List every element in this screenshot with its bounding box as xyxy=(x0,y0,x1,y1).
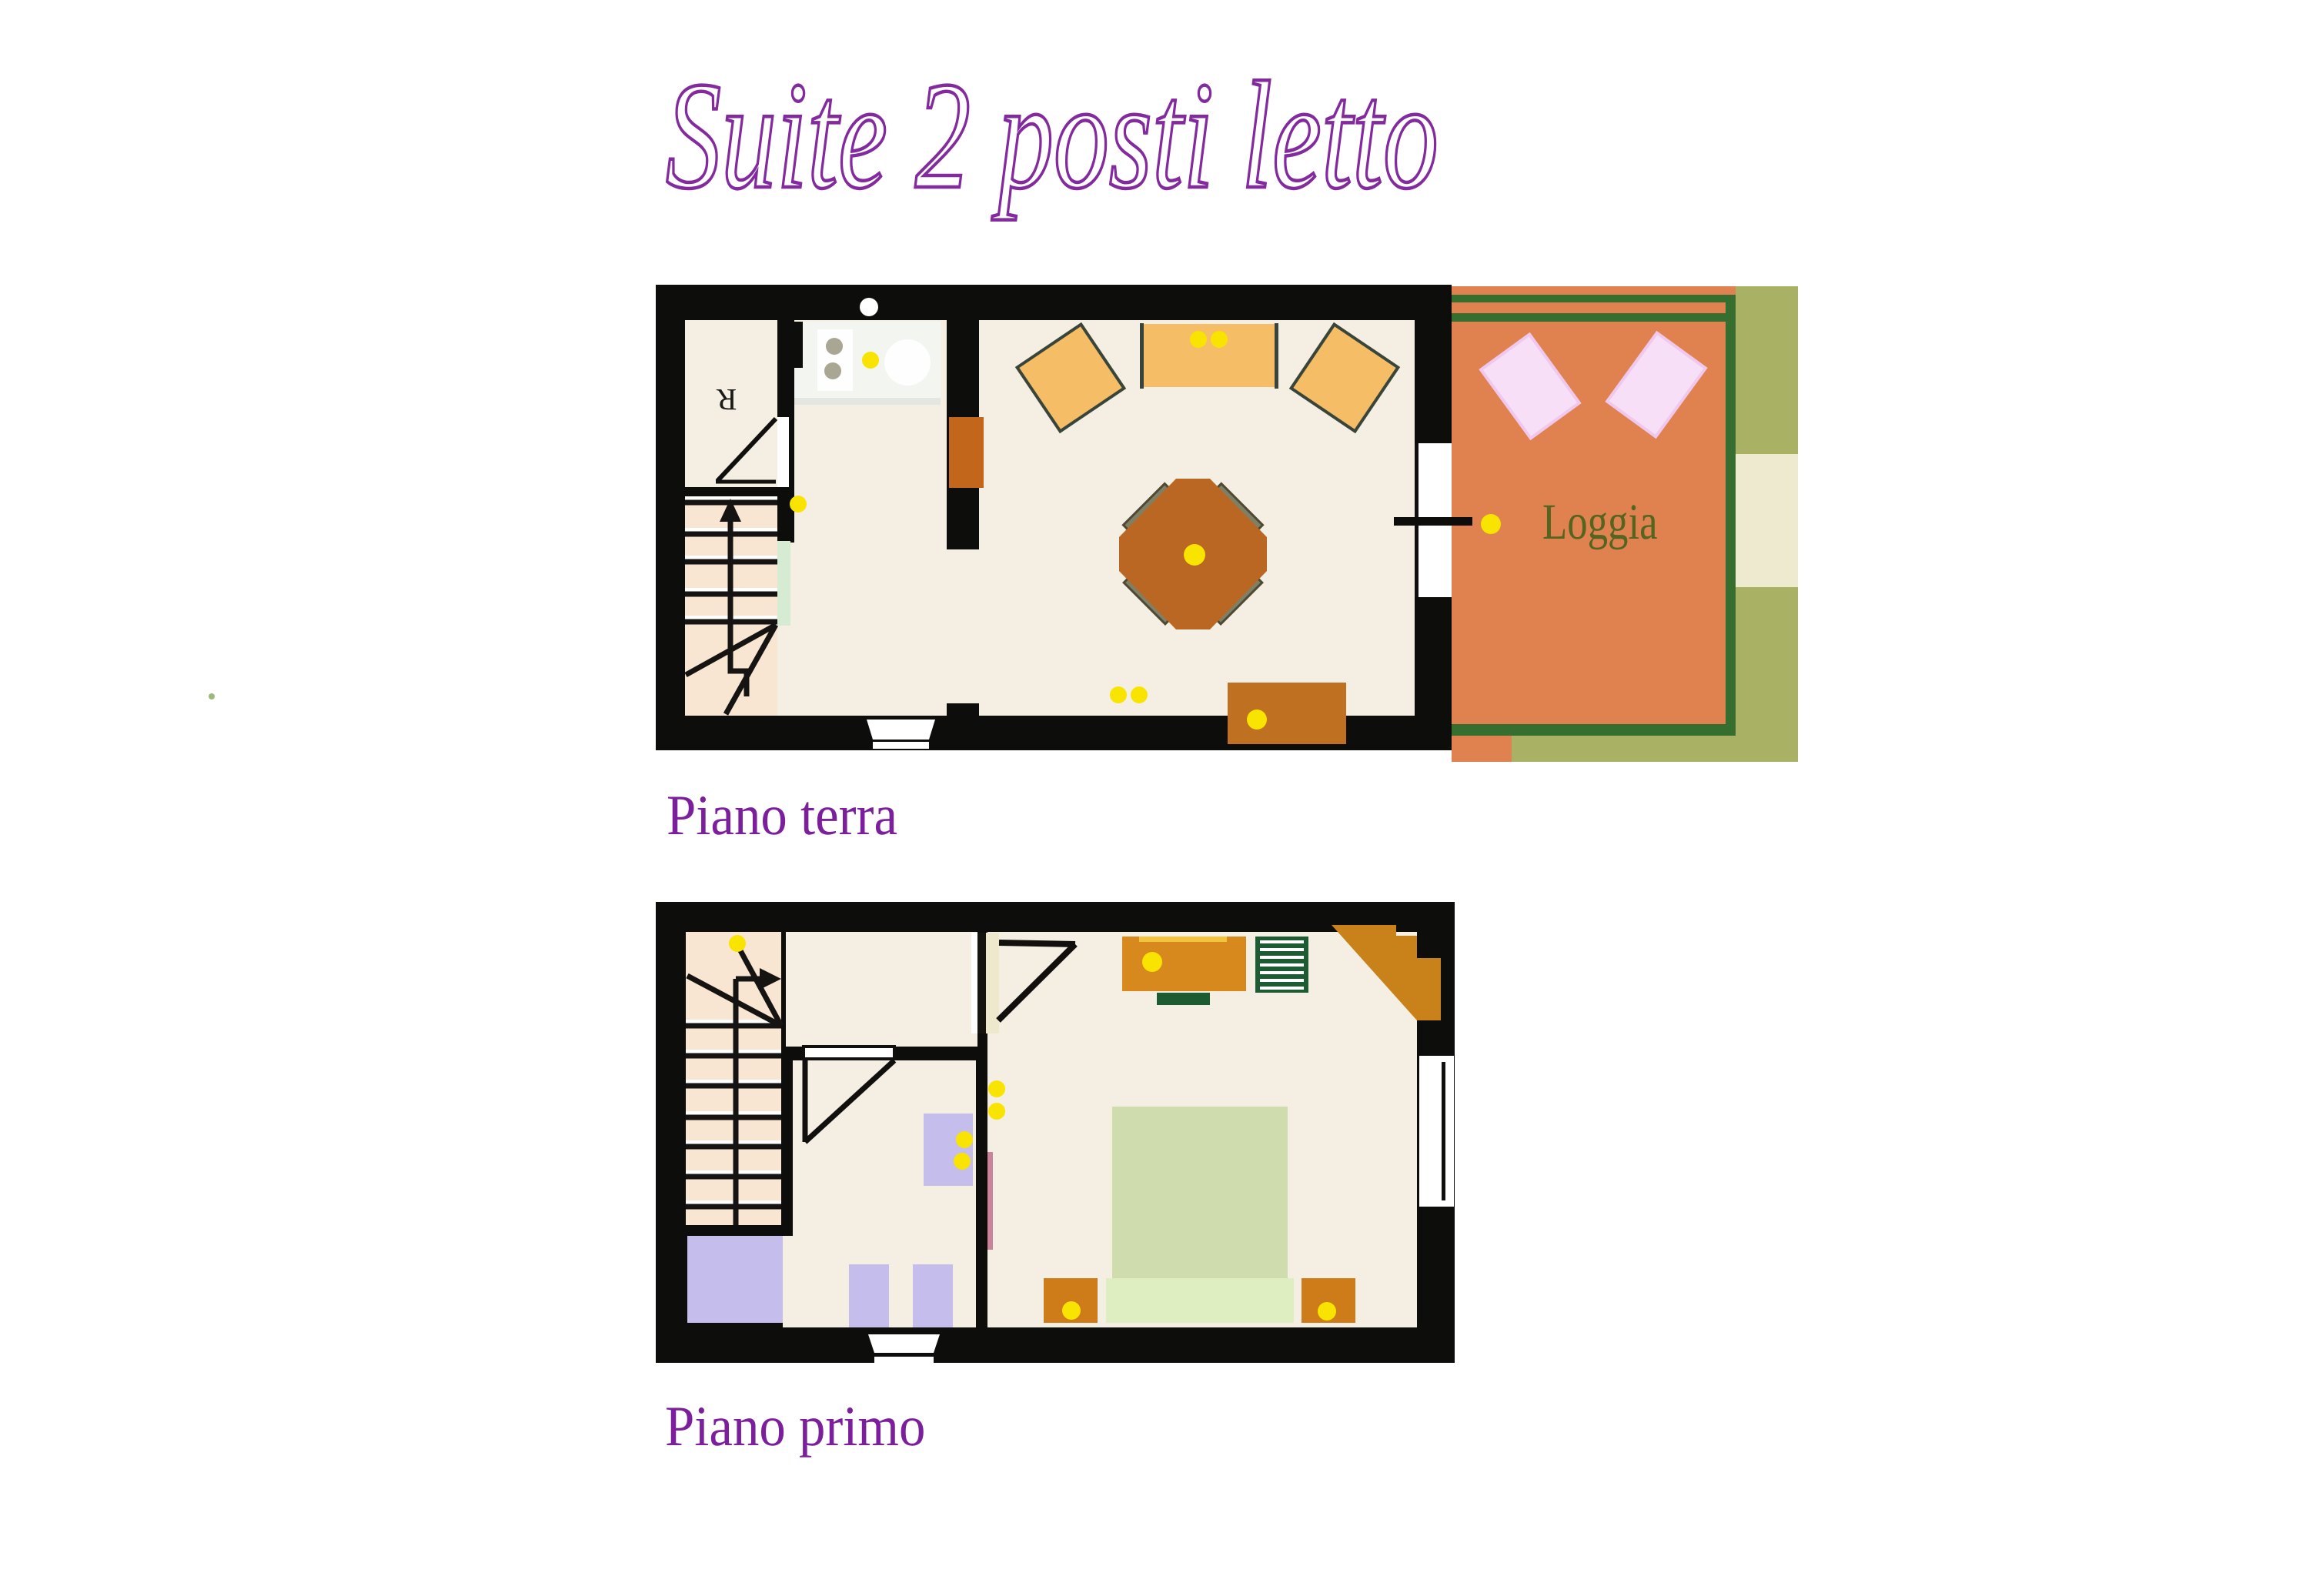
svg-text:Loggia: Loggia xyxy=(1542,494,1658,550)
svg-text:Piano primo: Piano primo xyxy=(665,1395,925,1458)
svg-text:R: R xyxy=(716,382,737,417)
svg-text:Piano terra: Piano terra xyxy=(667,784,897,847)
svg-text:Suite 2 posti letto: Suite 2 posti letto xyxy=(666,51,1439,221)
